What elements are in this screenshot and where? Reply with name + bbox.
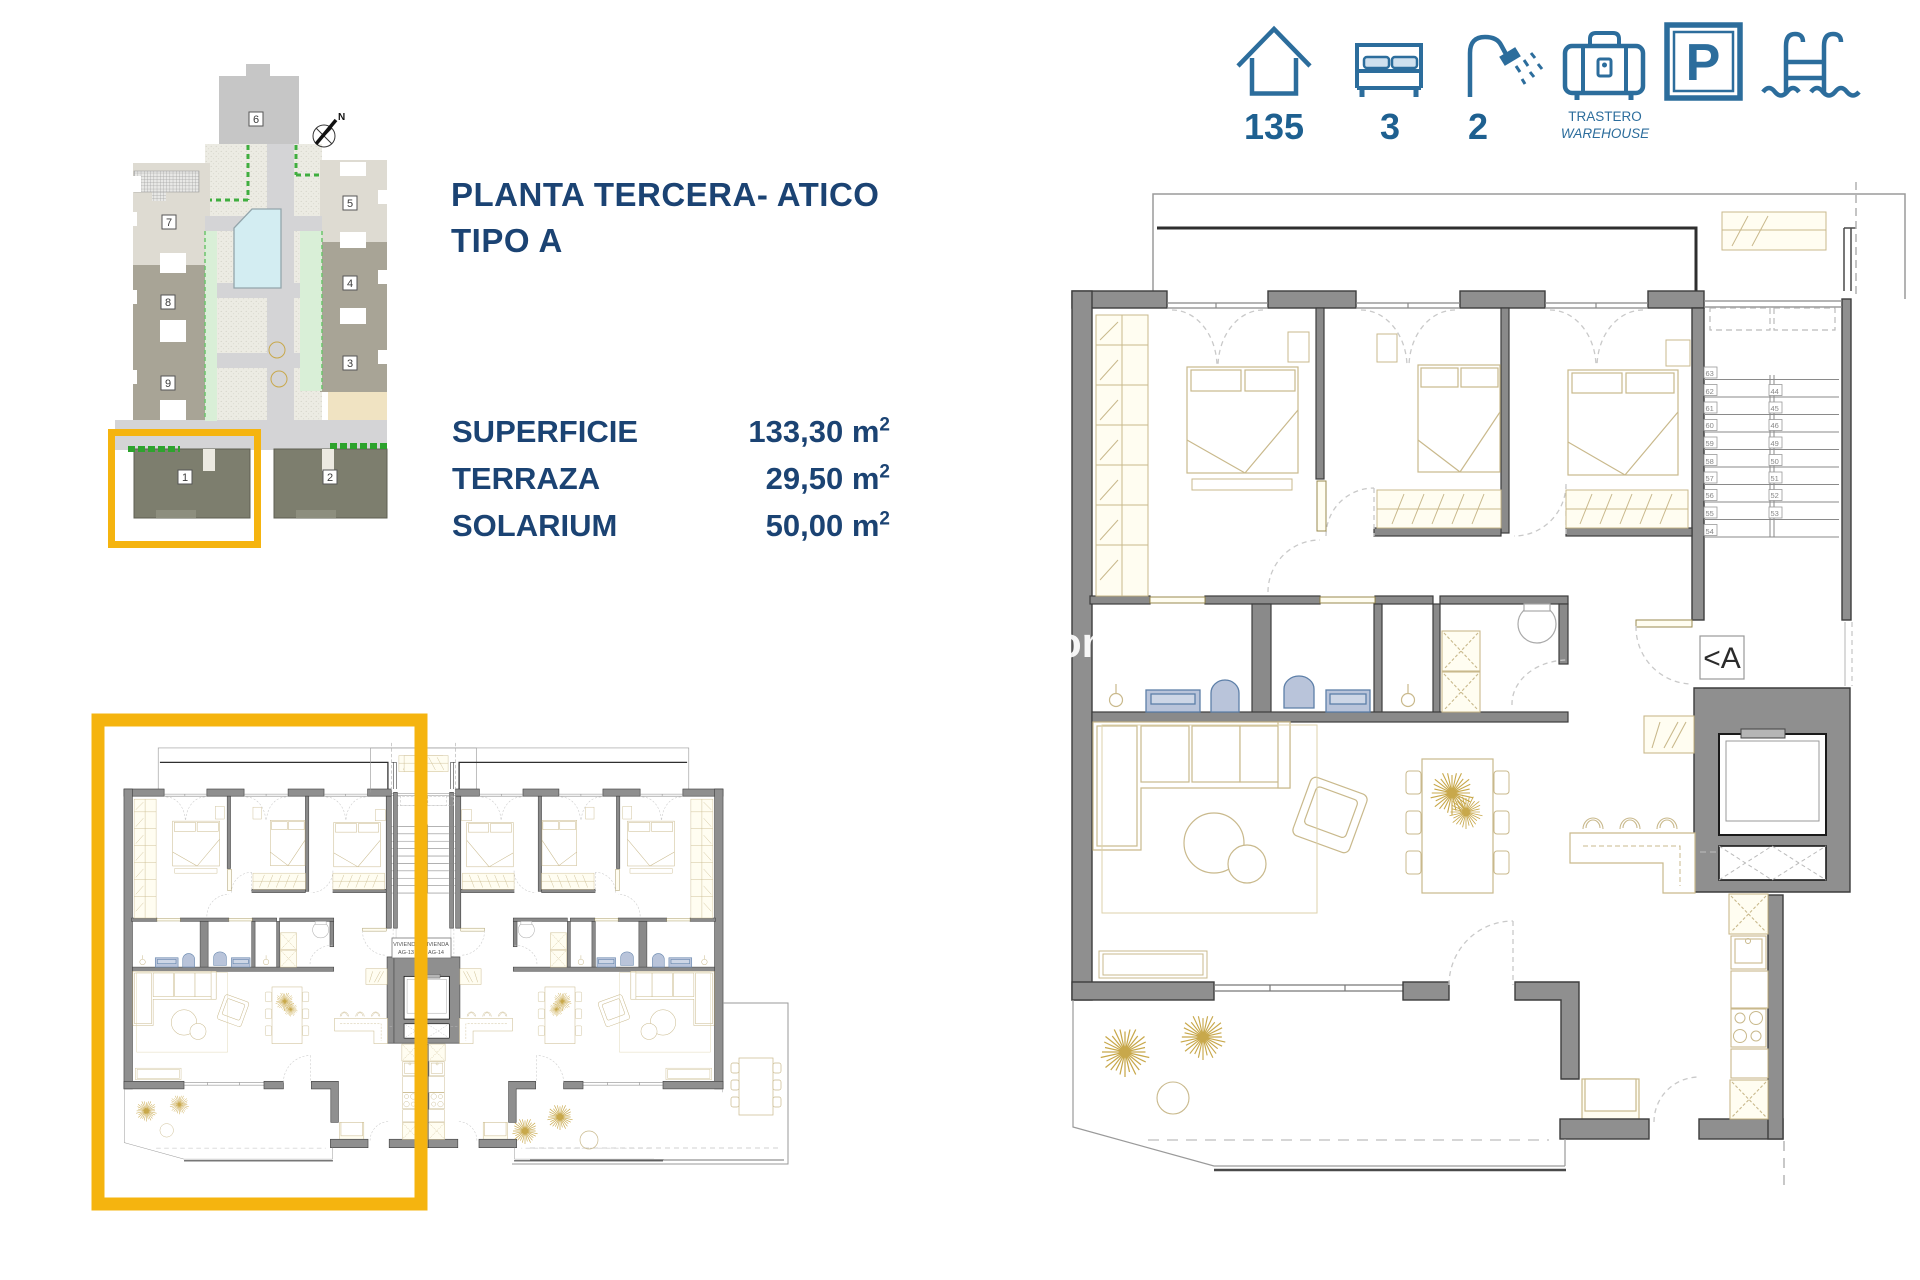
svg-text:51: 51 xyxy=(1771,474,1779,483)
svg-text:om: om xyxy=(1056,619,1119,666)
svg-text:AG-13: AG-13 xyxy=(398,950,414,956)
svg-text:49: 49 xyxy=(1771,439,1779,448)
svg-text:57: 57 xyxy=(1706,474,1714,483)
svg-text:62: 62 xyxy=(1706,387,1714,396)
svg-text:9: 9 xyxy=(165,378,171,390)
svg-text:N: N xyxy=(338,112,345,123)
svg-text:3: 3 xyxy=(347,358,353,370)
svg-text:3: 3 xyxy=(1380,106,1400,147)
svg-text:44: 44 xyxy=(1771,387,1779,396)
svg-text:<A: <A xyxy=(1703,642,1741,675)
svg-text:45: 45 xyxy=(1771,404,1779,413)
svg-text:63: 63 xyxy=(1706,369,1714,378)
svg-text:2: 2 xyxy=(327,472,333,484)
svg-text:AG-14: AG-14 xyxy=(428,950,444,956)
svg-text:135: 135 xyxy=(1244,106,1304,147)
svg-text:7: 7 xyxy=(166,217,172,229)
svg-text:54: 54 xyxy=(1706,527,1714,536)
svg-text:55: 55 xyxy=(1706,509,1714,518)
svg-text:59: 59 xyxy=(1706,439,1714,448)
svg-text:TRASTERO: TRASTERO xyxy=(1568,109,1642,124)
svg-text:52: 52 xyxy=(1771,491,1779,500)
svg-text:50: 50 xyxy=(1771,457,1779,466)
svg-text:5: 5 xyxy=(347,198,353,210)
svg-text:53: 53 xyxy=(1771,509,1779,518)
svg-text:60: 60 xyxy=(1706,421,1714,430)
svg-text:61: 61 xyxy=(1706,404,1714,413)
svg-text:56: 56 xyxy=(1706,491,1714,500)
svg-text:WAREHOUSE: WAREHOUSE xyxy=(1561,126,1650,141)
svg-text:4: 4 xyxy=(347,278,353,290)
svg-text:1: 1 xyxy=(182,472,188,484)
svg-text:2: 2 xyxy=(1468,106,1488,147)
svg-text:46: 46 xyxy=(1771,421,1779,430)
svg-text:8: 8 xyxy=(165,297,171,309)
svg-text:6: 6 xyxy=(253,114,259,126)
svg-text:P: P xyxy=(1686,34,1721,92)
svg-text:58: 58 xyxy=(1706,457,1714,466)
